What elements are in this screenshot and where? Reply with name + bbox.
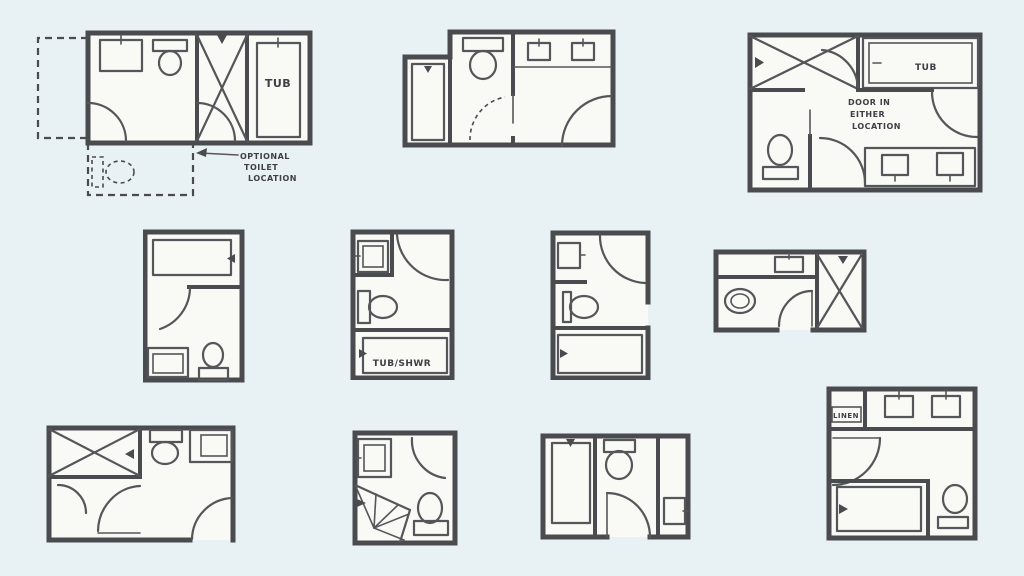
floor-plan-sketch-canvas: TUB OPTIONAL TOILET LOCATION [0, 0, 1024, 576]
floor-plan-bottom-left [45, 423, 237, 545]
floor-plan-bottom-right: LINEN [825, 383, 983, 545]
svg-text:TOILET: TOILET [244, 163, 278, 172]
svg-text:DOOR IN: DOOR IN [848, 98, 890, 107]
svg-text:LOCATION: LOCATION [852, 122, 901, 131]
tub-label: TUB [915, 63, 937, 73]
floor-plan-bottom-center [352, 428, 460, 546]
floor-plan-top-right: TUB DOOR IN EITHER LOCATION [745, 28, 985, 196]
room-floor [553, 233, 648, 378]
floor-plan-bottom-center-right [540, 432, 692, 542]
floor-plan-top-middle [398, 28, 620, 150]
annotation-text: OPTIONAL TOILET LOCATION [240, 152, 297, 183]
floor-plan-top-left: TUB OPTIONAL TOILET LOCATION [30, 25, 320, 205]
dashed-extension-wall [38, 38, 88, 138]
optional-toilet-fixture [92, 157, 134, 187]
room-floor [716, 252, 864, 330]
tub-label: TUB [265, 77, 291, 90]
svg-text:LOCATION: LOCATION [248, 174, 297, 183]
room-floor [405, 32, 613, 145]
floor-plan-mid-center: TUB/SHWR [350, 228, 455, 380]
annotation-arrow [196, 148, 238, 157]
floor-plan-mid-center-right [550, 228, 652, 380]
linen-label: LINEN [833, 412, 859, 420]
tub-shwr-label: TUB/SHWR [373, 359, 431, 369]
floor-plan-mid-left [143, 228, 245, 383]
floor-plan-mid-right [713, 248, 868, 338]
svg-text:EITHER: EITHER [850, 110, 885, 119]
svg-text:OPTIONAL: OPTIONAL [240, 152, 290, 161]
room-floor [145, 232, 242, 380]
arrowhead-icon [196, 148, 207, 157]
